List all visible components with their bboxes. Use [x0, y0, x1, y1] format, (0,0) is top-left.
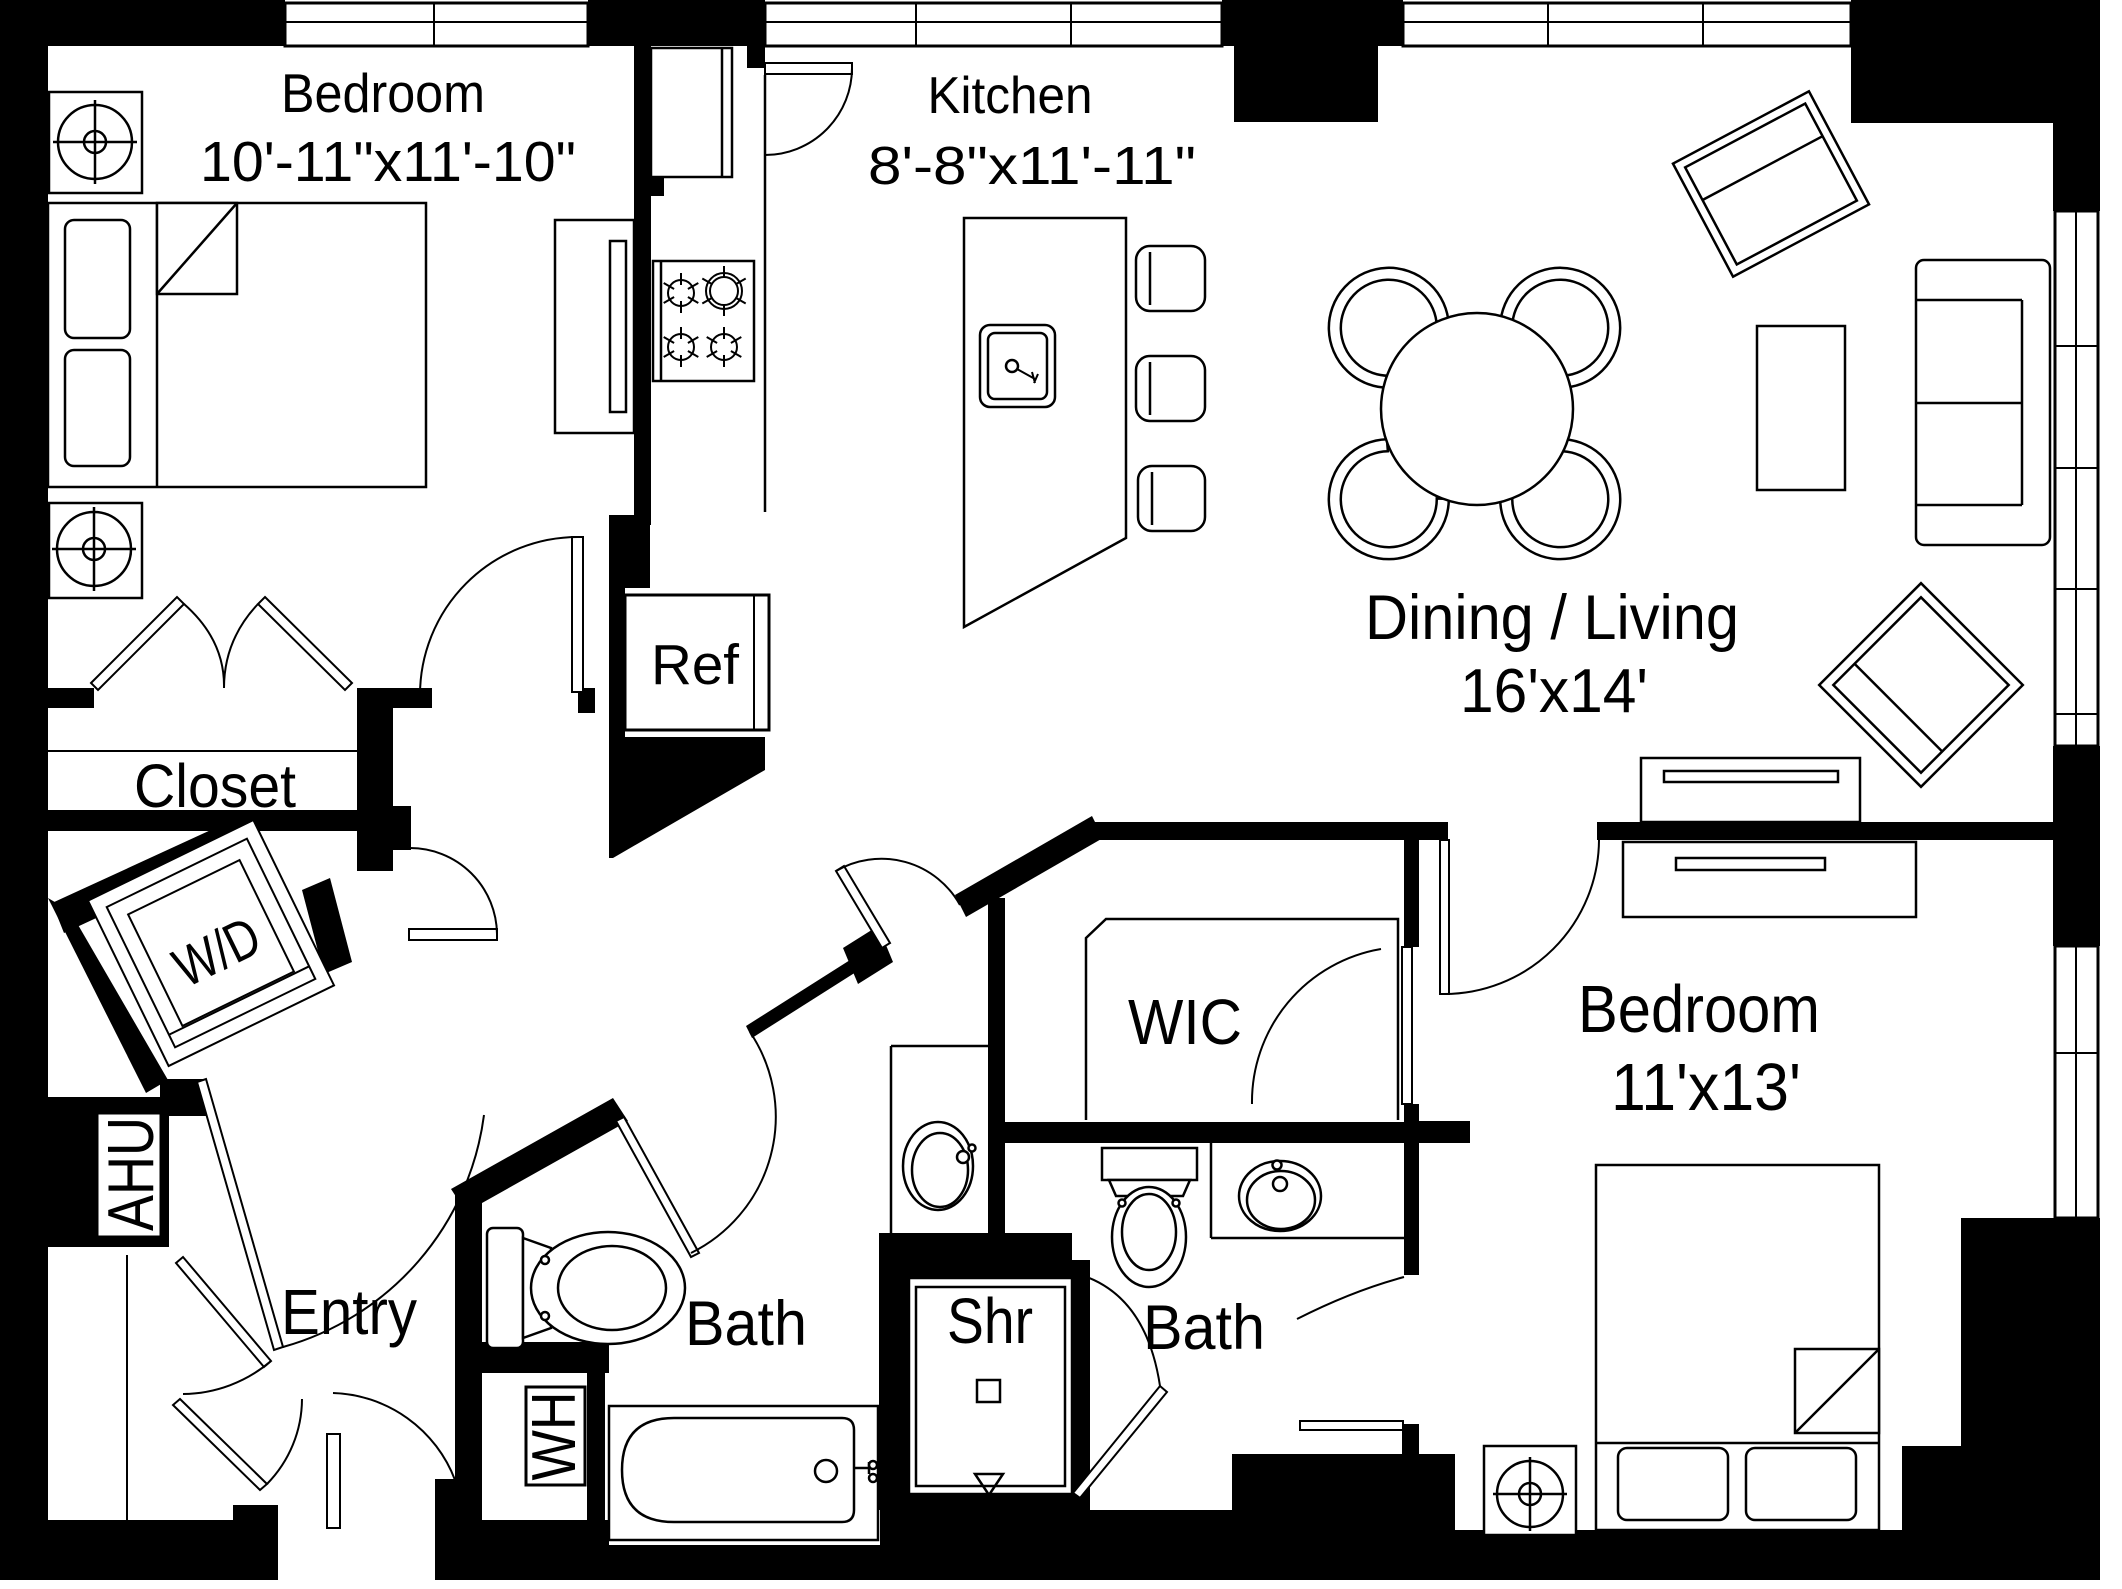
svg-text:8'-8"x11'-11": 8'-8"x11'-11": [868, 136, 1196, 196]
svg-text:11'x13': 11'x13': [1611, 1050, 1801, 1125]
svg-text:WH: WH: [520, 1392, 589, 1481]
svg-text:Entry: Entry: [281, 1276, 417, 1348]
svg-text:Bath: Bath: [685, 1289, 807, 1359]
svg-text:16'x14': 16'x14': [1460, 657, 1648, 726]
svg-text:Kitchen: Kitchen: [928, 67, 1093, 125]
svg-text:Closet: Closet: [134, 752, 296, 820]
svg-text:Shr: Shr: [947, 1285, 1033, 1357]
svg-text:Bedroom: Bedroom: [281, 62, 485, 124]
svg-text:Dining / Living: Dining / Living: [1365, 583, 1739, 653]
svg-text:AHU: AHU: [94, 1117, 167, 1231]
svg-text:Bath: Bath: [1143, 1293, 1265, 1363]
svg-text:10'-11"x11'-10": 10'-11"x11'-10": [200, 130, 576, 194]
svg-text:Ref: Ref: [651, 633, 739, 697]
svg-text:WIC: WIC: [1128, 986, 1242, 1058]
svg-text:Bedroom: Bedroom: [1578, 972, 1820, 1047]
